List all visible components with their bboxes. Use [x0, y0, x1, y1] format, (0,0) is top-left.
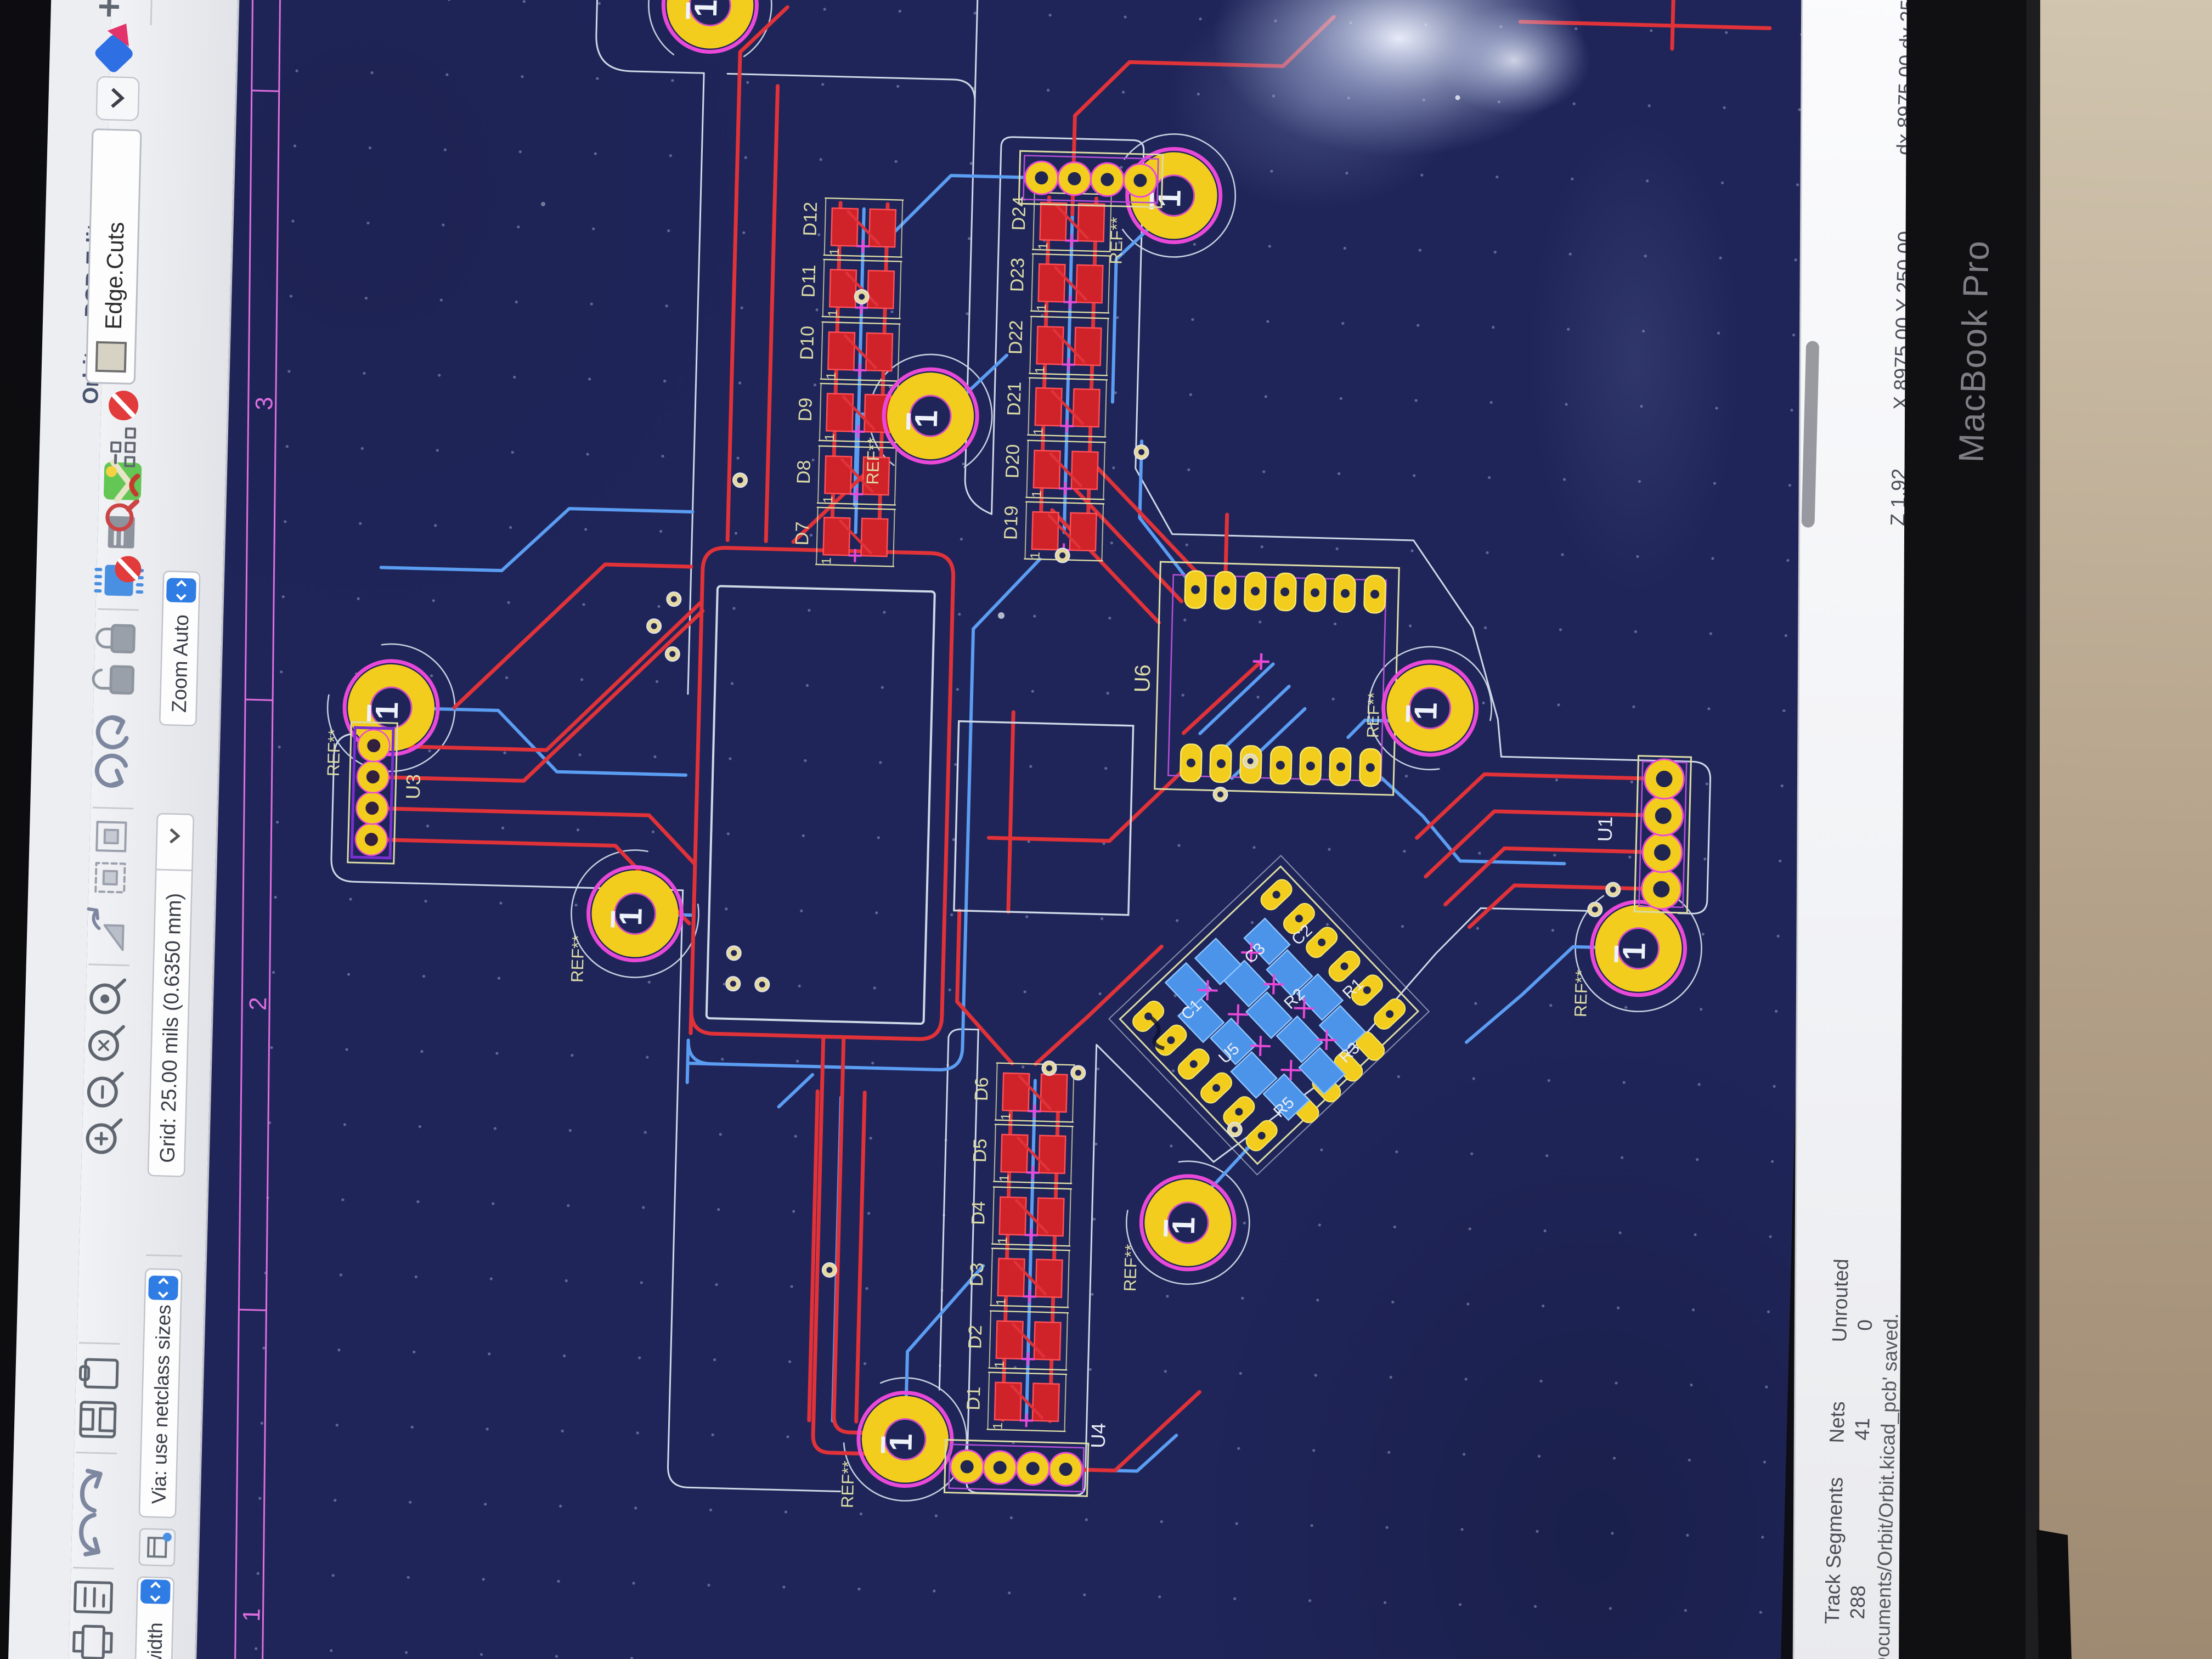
- svg-text:D7: D7: [792, 521, 813, 545]
- svg-text:D4: D4: [968, 1201, 989, 1225]
- svg-text:D3: D3: [966, 1262, 988, 1286]
- svg-text:D2: D2: [964, 1325, 986, 1349]
- svg-text:REF**: REF**: [1571, 970, 1591, 1018]
- svg-text:D20: D20: [1002, 444, 1024, 478]
- svg-text:D11: D11: [798, 264, 820, 298]
- svg-text:1: 1: [998, 1113, 1013, 1120]
- svg-text:Nets: Nets: [1825, 1401, 1849, 1443]
- svg-text:REF**: REF**: [324, 729, 344, 777]
- svg-text:U1: U1: [1594, 816, 1617, 842]
- svg-text:D23: D23: [1007, 257, 1029, 292]
- svg-text:REF**: REF**: [1364, 692, 1383, 738]
- svg-text:1: 1: [1031, 428, 1046, 436]
- svg-text:Zoom Auto: Zoom Auto: [168, 614, 193, 713]
- svg-text:1: 1: [992, 1361, 1007, 1368]
- svg-text:D12: D12: [800, 202, 822, 236]
- svg-text:D1: D1: [963, 1386, 984, 1410]
- svg-text:1: 1: [822, 433, 837, 441]
- svg-text:Edge.Cuts: Edge.Cuts: [100, 222, 129, 330]
- svg-text:1: 1: [994, 1298, 1008, 1306]
- svg-text:1: 1: [1032, 366, 1047, 374]
- svg-text:REF**: REF**: [1106, 217, 1126, 264]
- svg-text:1: 1: [824, 372, 839, 380]
- svg-text:REF**: REF**: [838, 1460, 858, 1508]
- svg-text:1: 1: [1036, 242, 1051, 250]
- svg-text:1: 1: [827, 248, 842, 256]
- svg-text:2: 2: [245, 997, 272, 1011]
- svg-text:1: 1: [688, 0, 724, 18]
- svg-text:Unrouted: Unrouted: [1828, 1259, 1853, 1342]
- svg-text:1: 1: [995, 1237, 1010, 1244]
- svg-text:0: 0: [1854, 1319, 1877, 1331]
- svg-text:1: 1: [1029, 490, 1044, 498]
- svg-text:1: 1: [990, 1422, 1005, 1430]
- svg-text:1: 1: [1166, 1216, 1202, 1235]
- svg-text:s width: s width: [143, 1622, 167, 1659]
- svg-text:1: 1: [909, 410, 945, 428]
- svg-text:D8: D8: [793, 460, 815, 484]
- svg-text:1: 1: [613, 907, 649, 926]
- svg-text:1: 1: [819, 557, 834, 565]
- svg-text:D5: D5: [969, 1138, 991, 1163]
- svg-text:1: 1: [1028, 551, 1042, 559]
- svg-text:REF**: REF**: [863, 437, 883, 485]
- svg-text:D22: D22: [1005, 320, 1027, 354]
- svg-text:REF**: REF**: [567, 935, 588, 983]
- svg-text:MacBook Pro: MacBook Pro: [1951, 239, 1996, 463]
- svg-text:1: 1: [997, 1174, 1012, 1182]
- svg-text:U6: U6: [1130, 664, 1155, 693]
- svg-text:REF**: REF**: [1120, 1244, 1141, 1291]
- svg-text:D6: D6: [971, 1077, 992, 1101]
- svg-text:1: 1: [821, 496, 836, 504]
- svg-text:1: 1: [883, 1433, 919, 1452]
- svg-text:U4: U4: [1087, 1423, 1110, 1448]
- svg-text:D10: D10: [797, 325, 819, 360]
- svg-text:1: 1: [826, 309, 840, 317]
- svg-text:3: 3: [251, 397, 278, 411]
- svg-text:D19: D19: [1000, 505, 1022, 540]
- svg-text:D9: D9: [795, 397, 816, 421]
- svg-text:D21: D21: [1003, 381, 1025, 416]
- svg-text:1: 1: [1408, 702, 1444, 721]
- svg-text:288: 288: [1846, 1585, 1870, 1620]
- svg-text:1: 1: [1616, 942, 1652, 961]
- svg-text:1: 1: [1034, 304, 1049, 312]
- svg-text:U3: U3: [402, 774, 425, 799]
- svg-text:41: 41: [1850, 1418, 1874, 1441]
- svg-text:Track Segments: Track Segments: [1821, 1477, 1847, 1624]
- svg-text:1: 1: [369, 702, 405, 720]
- svg-text:1: 1: [238, 1608, 266, 1622]
